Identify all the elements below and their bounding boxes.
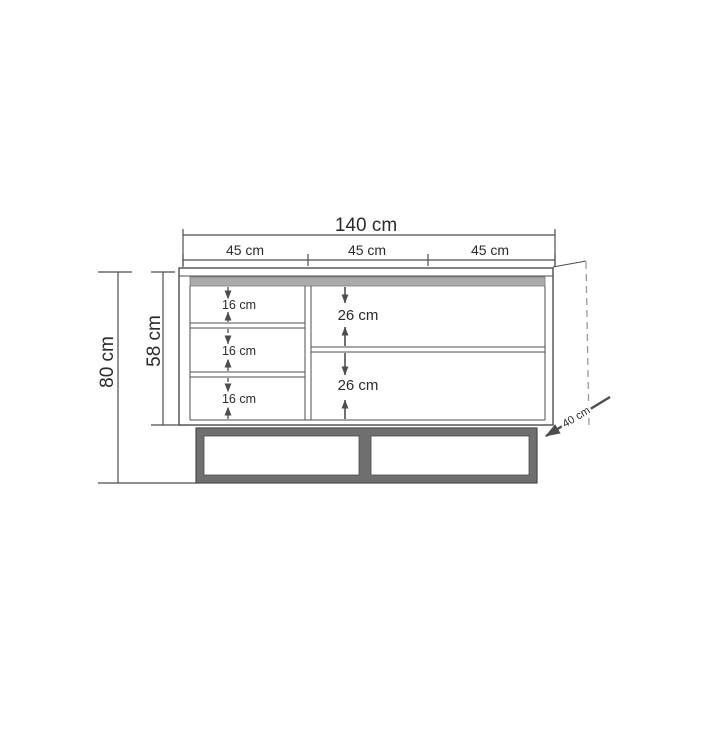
- body-height-label: 58 cm: [144, 315, 165, 367]
- left-compartment-label-2: 16 cm: [222, 344, 256, 358]
- left-compartment-label-3: 16 cm: [222, 392, 256, 406]
- top-recess-strip: [190, 277, 545, 286]
- left-compartment-label-1: 16 cm: [222, 298, 256, 312]
- right-compartment-label-2: 26 cm: [338, 377, 379, 394]
- furniture-dimension-diagram: 140 cm 45 cm 45 cm 45 cm 80 cm 58 cm 40 …: [0, 0, 724, 724]
- base-window-left: [204, 436, 359, 475]
- base-frame: [196, 428, 537, 483]
- top-back-edge: [553, 261, 586, 267]
- total-width-dimension: 140 cm: [183, 215, 555, 267]
- total-height-label: 80 cm: [97, 336, 118, 388]
- diagram-canvas: 140 cm 45 cm 45 cm 45 cm 80 cm 58 cm 40 …: [0, 0, 724, 724]
- hidden-back-edge: [586, 262, 589, 427]
- section-width-dimension: 45 cm 45 cm 45 cm: [183, 242, 555, 266]
- perspective-depth: 40 cm: [546, 261, 610, 436]
- section-width-label-3: 45 cm: [471, 242, 509, 258]
- section-width-label-2: 45 cm: [348, 242, 386, 258]
- right-compartment-label-1: 26 cm: [338, 307, 379, 324]
- total-width-label: 140 cm: [335, 215, 397, 236]
- section-width-label-1: 45 cm: [226, 242, 264, 258]
- left-compartment-dimensions: 16 cm 16 cm 16 cm: [222, 287, 256, 419]
- base-window-right: [371, 436, 529, 475]
- depth-label: 40 cm: [561, 405, 593, 431]
